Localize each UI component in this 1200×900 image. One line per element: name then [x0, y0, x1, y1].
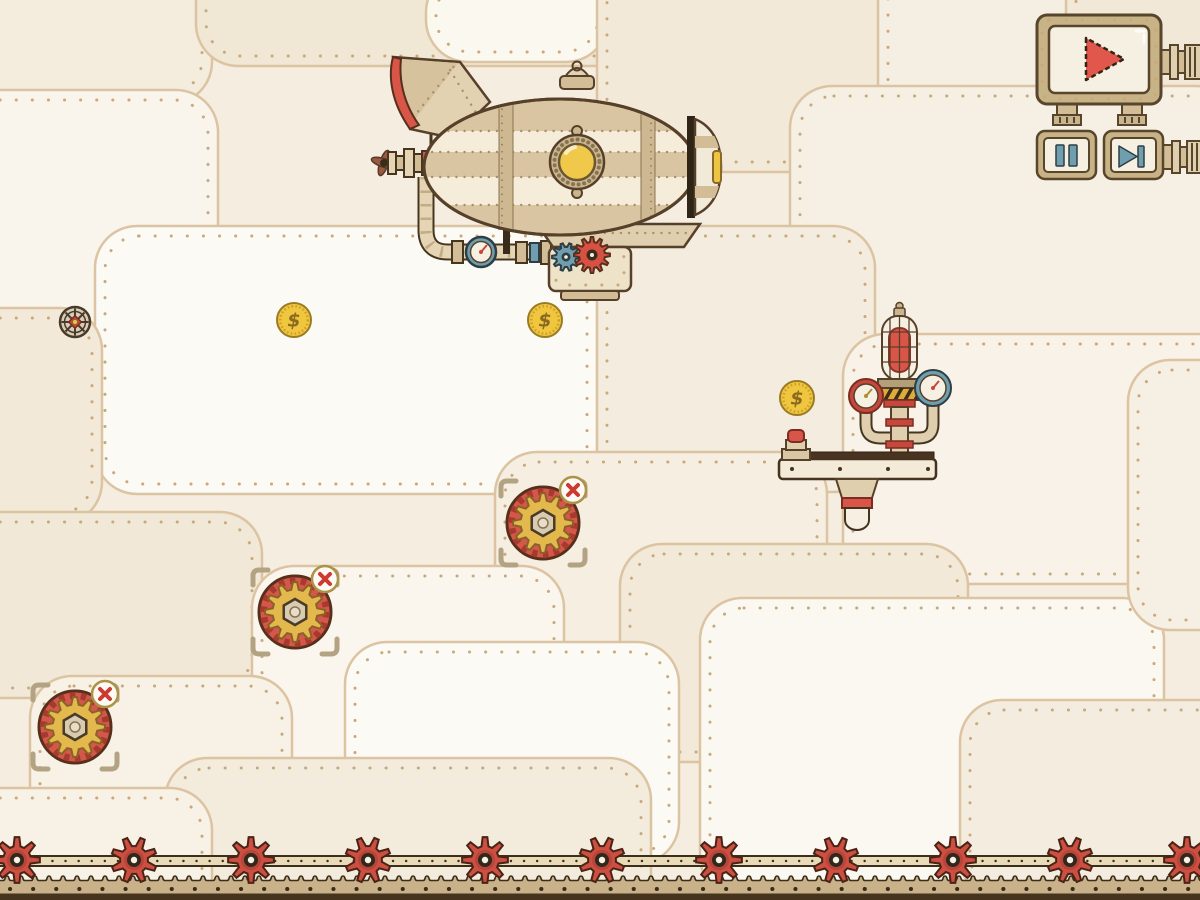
- conveyor-gear: [0, 837, 40, 883]
- conveyor-gear: [930, 837, 976, 883]
- background-panel: [1128, 360, 1200, 630]
- coin[interactable]: [277, 303, 311, 337]
- valve-wheel[interactable]: [60, 307, 90, 337]
- ground: [0, 875, 1200, 900]
- pause-button[interactable]: [1037, 131, 1096, 179]
- background-panel: [0, 308, 102, 524]
- hud-pipe-top: [1161, 45, 1200, 79]
- play-button[interactable]: [1037, 15, 1161, 104]
- skip-button[interactable]: [1104, 131, 1163, 179]
- conveyor-gear: [696, 837, 742, 883]
- pipe-gauge: [466, 237, 496, 267]
- teal-gauge: [915, 370, 951, 406]
- background-panel: [0, 512, 262, 698]
- game-scene: $: [0, 0, 1200, 900]
- red-gauge: [849, 379, 883, 413]
- coin[interactable]: [528, 303, 562, 337]
- conveyor-gear: [462, 837, 508, 883]
- coin[interactable]: [780, 381, 814, 415]
- conveyor-gear: [228, 837, 274, 883]
- background-panel: [0, 0, 212, 104]
- background-panel: [426, 0, 608, 62]
